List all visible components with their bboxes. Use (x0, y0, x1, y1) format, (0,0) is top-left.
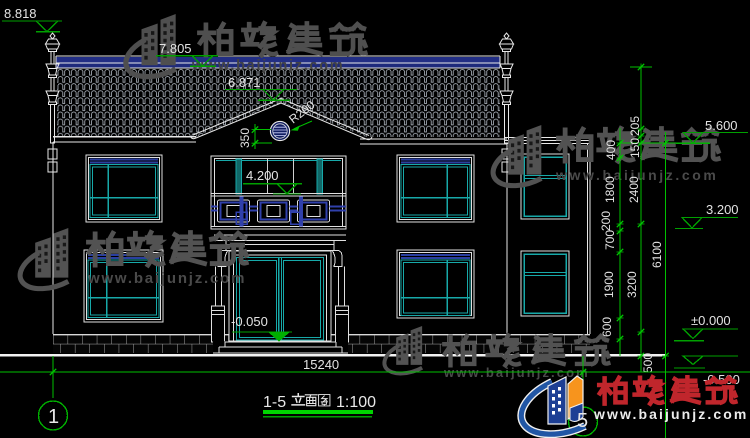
svg-text:1900: 1900 (602, 271, 616, 298)
svg-text:200: 200 (599, 211, 613, 231)
svg-text:5.600: 5.600 (705, 118, 738, 133)
svg-text:www.baijunjz.com: www.baijunjz.com (593, 406, 748, 422)
svg-text:1-5: 1-5 (263, 394, 286, 411)
svg-text:4.200: 4.200 (246, 168, 279, 183)
svg-text:6.871: 6.871 (228, 75, 261, 90)
svg-text:15240: 15240 (303, 357, 339, 372)
svg-text:6100: 6100 (650, 241, 664, 268)
svg-text:3.200: 3.200 (706, 202, 739, 217)
svg-text:3200: 3200 (625, 271, 639, 298)
svg-text:1:100: 1:100 (336, 394, 376, 411)
svg-text:205: 205 (628, 116, 642, 136)
svg-text:700: 700 (603, 230, 617, 250)
svg-text:150: 150 (628, 138, 642, 158)
svg-text:±0.000: ±0.000 (691, 313, 731, 328)
svg-text:2400: 2400 (627, 176, 641, 203)
svg-text:1: 1 (48, 406, 59, 428)
svg-text:600: 600 (600, 317, 614, 337)
svg-text:400: 400 (604, 140, 618, 160)
svg-text:5: 5 (577, 410, 588, 432)
svg-text:7.805: 7.805 (159, 41, 192, 56)
svg-text:350: 350 (238, 128, 252, 148)
svg-text:500: 500 (641, 353, 655, 373)
svg-text:-0.050: -0.050 (231, 314, 268, 329)
svg-text:www.baijunjz.com: www.baijunjz.com (87, 270, 246, 287)
svg-text:8.818: 8.818 (4, 6, 37, 21)
svg-text:1800: 1800 (603, 176, 617, 203)
